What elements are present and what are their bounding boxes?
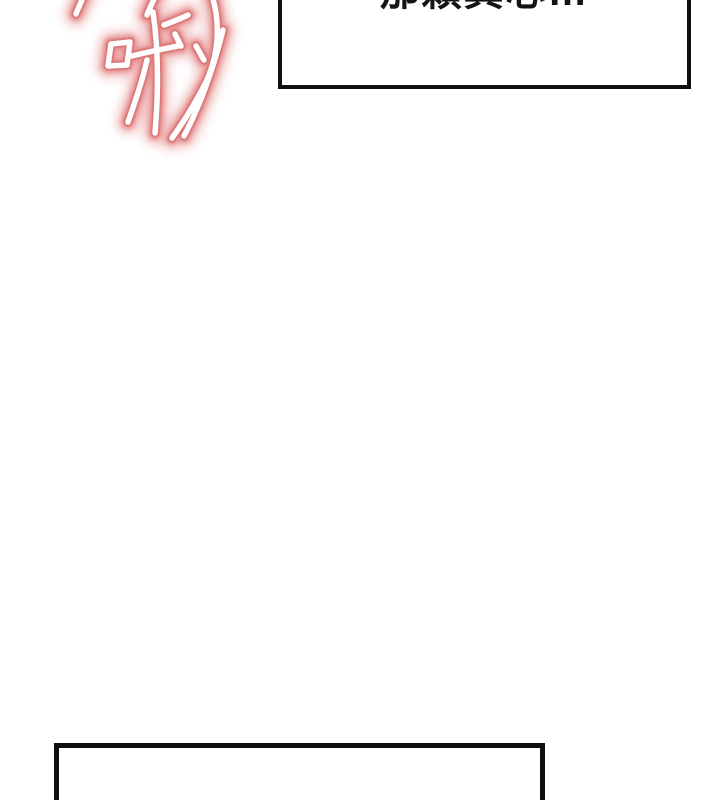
page-background: 那顆真心… [0,0,720,800]
kiss-sfx-glyph [46,0,246,148]
speech-bubble-top-text: 那顆真心… [278,0,691,12]
speech-bubble-bottom [54,743,545,800]
